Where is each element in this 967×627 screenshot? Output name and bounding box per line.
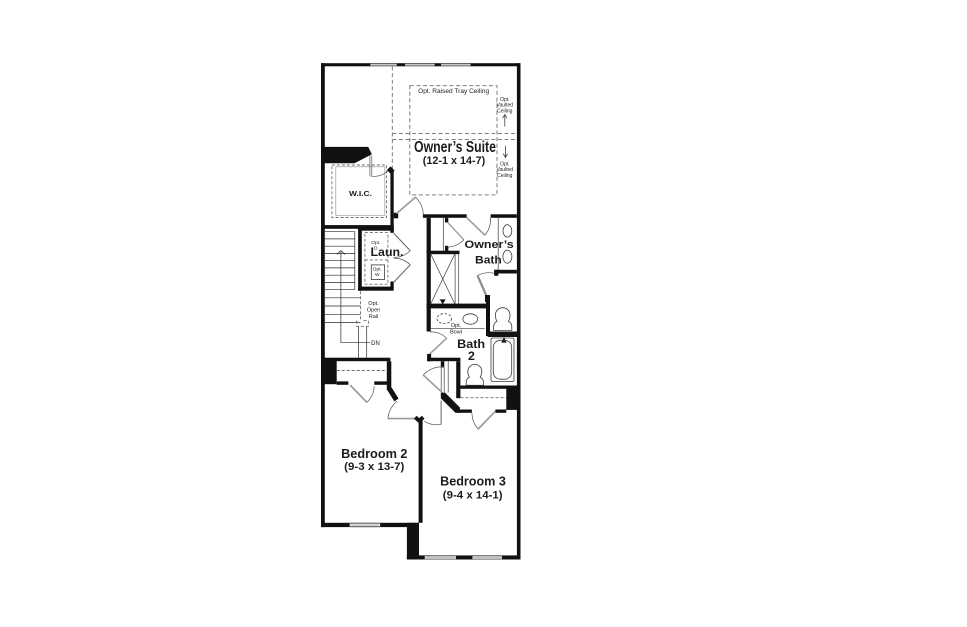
svg-text:Opt.: Opt.	[373, 267, 382, 273]
svg-text:Opt. Raised Tray Ceiling: Opt. Raised Tray Ceiling	[418, 88, 490, 95]
svg-text:Opt.: Opt.	[451, 323, 462, 329]
svg-text:Owner’s Suite: Owner’s Suite	[414, 139, 496, 156]
svg-text:Opt.: Opt.	[368, 301, 379, 307]
svg-text:W: W	[375, 272, 380, 278]
svg-text:(12-1 x 14-7): (12-1 x 14-7)	[423, 155, 486, 167]
svg-text:2: 2	[468, 349, 475, 363]
svg-text:Bedroom 2: Bedroom 2	[341, 446, 407, 461]
svg-text:Open: Open	[367, 308, 380, 314]
svg-text:DN: DN	[371, 341, 380, 347]
svg-text:Bowl: Bowl	[450, 329, 462, 335]
svg-text:Bedroom 3: Bedroom 3	[440, 474, 506, 489]
svg-text:Laun.: Laun.	[371, 245, 404, 259]
svg-text:Owner’s: Owner’s	[465, 239, 514, 251]
svg-text:Bath: Bath	[475, 254, 502, 266]
svg-text:(9-4 x 14-1): (9-4 x 14-1)	[443, 490, 503, 502]
svg-text:(9-3 x 13-7): (9-3 x 13-7)	[344, 461, 405, 473]
svg-text:Ceiling: Ceiling	[497, 108, 513, 114]
svg-text:Ceiling: Ceiling	[497, 173, 513, 179]
svg-text:Rail: Rail	[369, 314, 378, 320]
svg-text:W.I.C.: W.I.C.	[349, 189, 372, 198]
